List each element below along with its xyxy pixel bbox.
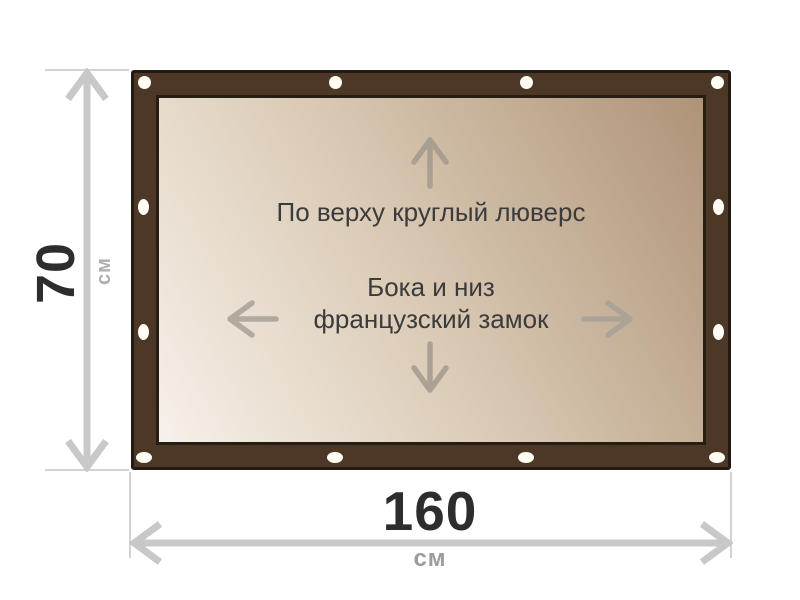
round-grommet: [329, 76, 342, 89]
round-grommet: [711, 76, 724, 89]
french-lock-slot: [709, 452, 725, 463]
height-value: 70: [22, 231, 90, 315]
french-lock-slot: [136, 452, 152, 463]
round-grommet: [138, 76, 151, 89]
height-unit: см: [82, 253, 126, 289]
width-value: 160: [330, 482, 530, 540]
french-lock-slot: [138, 324, 149, 340]
side-fastening-note-line1: Бока и низ: [156, 271, 706, 303]
french-lock-slot: [713, 199, 724, 215]
side-fastening-note: Бока и низ французский замок: [156, 271, 706, 335]
banner-size-diagram: По верху круглый люверс Бока и низ франц…: [0, 0, 800, 600]
french-lock-slot: [713, 324, 724, 340]
arrow-down-icon: [408, 340, 452, 396]
round-grommet: [520, 76, 533, 89]
french-lock-slot: [327, 452, 343, 463]
french-lock-slot: [138, 199, 149, 215]
arrow-up-icon: [408, 134, 452, 190]
width-unit: см: [380, 544, 480, 574]
french-lock-slot: [518, 452, 534, 463]
top-fastening-note: По верху круглый люверс: [156, 197, 706, 227]
side-fastening-note-line2: французский замок: [156, 303, 706, 335]
